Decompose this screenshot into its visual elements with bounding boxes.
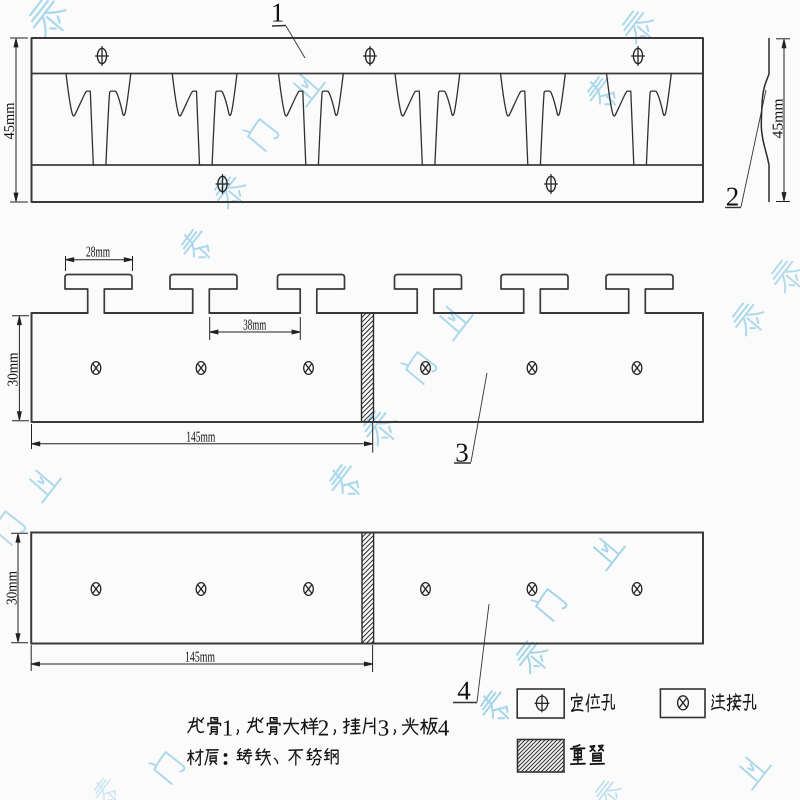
svg-text:28mm: 28mm <box>86 245 110 261</box>
svg-text:2: 2 <box>318 716 330 741</box>
svg-text:45mm: 45mm <box>771 98 787 138</box>
svg-text:45mm: 45mm <box>2 102 18 139</box>
svg-text:145mm: 145mm <box>186 430 215 446</box>
svg-text:145mm: 145mm <box>185 650 215 666</box>
svg-text:30mm: 30mm <box>5 571 21 605</box>
svg-text:1: 1 <box>271 0 285 28</box>
svg-text:38mm: 38mm <box>243 318 266 334</box>
svg-text:4: 4 <box>438 716 450 741</box>
svg-text:3: 3 <box>378 716 390 741</box>
svg-text:1: 1 <box>222 716 234 741</box>
svg-text:30mm: 30mm <box>6 352 22 386</box>
svg-text:4: 4 <box>457 676 471 706</box>
